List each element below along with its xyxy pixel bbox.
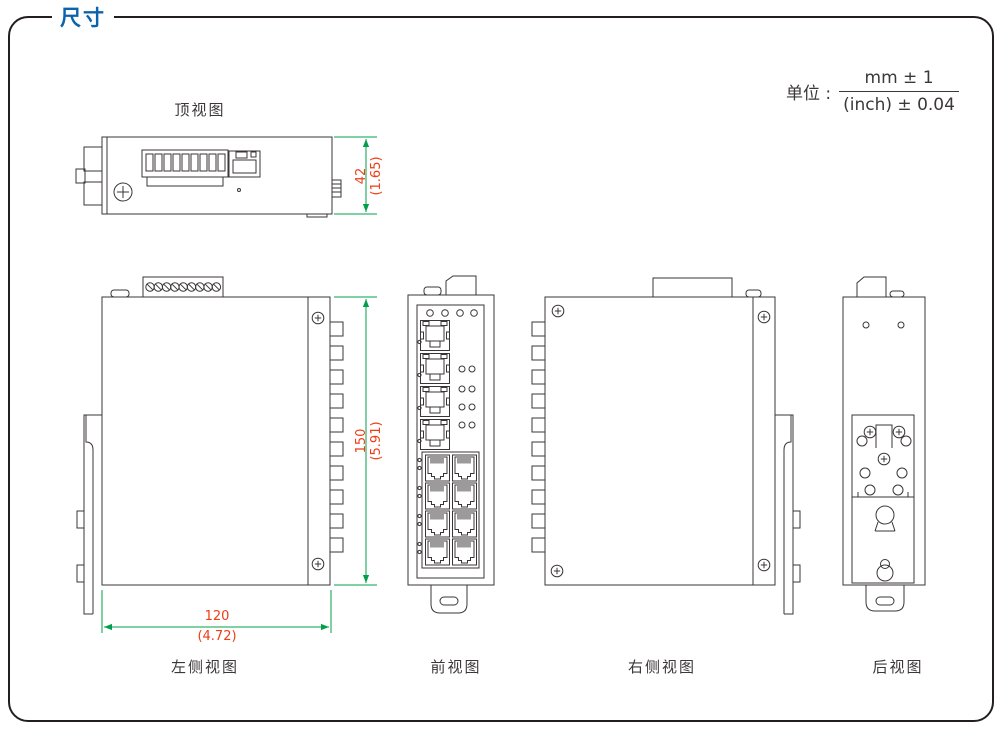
terminal-block-right-side (653, 278, 732, 297)
top-button-rear (890, 291, 904, 297)
terminal-block-front (446, 276, 476, 295)
rj45-ports-front (418, 452, 479, 568)
din-rail-bracket-rear (852, 415, 914, 583)
mounting-tab-rear (866, 585, 904, 611)
dim-120-mm-label: 120 (157, 609, 277, 624)
top-button-front (424, 287, 441, 295)
top-view-label: 顶视图 (174, 99, 225, 120)
front-view-label: 前视图 (430, 656, 481, 677)
reset-hole (238, 189, 241, 192)
unit-fraction: mm ± 1 (inch) ± 0.04 (839, 68, 959, 115)
unit-label: 单位 : (786, 79, 831, 104)
bottom-foot (307, 214, 327, 217)
port-profile-right-view (532, 322, 545, 552)
dim-120-inch-label: (4.72) (157, 629, 277, 644)
vent-hole (863, 322, 869, 328)
terminal-block-side (143, 277, 223, 297)
page-title: 尺寸 (52, 2, 114, 32)
power-jack-side (332, 180, 341, 197)
top-button-right-side (746, 290, 761, 297)
rear-view-label: 后视图 (872, 656, 923, 677)
top-button-side (111, 290, 129, 297)
din-clip-right-view (775, 415, 800, 614)
unit-numerator: mm ± 1 (839, 68, 959, 91)
din-clip-left-view (77, 415, 102, 614)
port-profile-left-view (330, 322, 343, 552)
left-view-label: 左侧视图 (171, 656, 239, 677)
grounding-screw-top (114, 183, 132, 201)
terminal-block-rear (857, 277, 886, 297)
din-clip-top (76, 147, 102, 205)
console-port-top (229, 151, 260, 177)
right-view-label: 右侧视图 (628, 656, 696, 677)
unit-note: 单位 : mm ± 1 (inch) ± 0.04 (786, 68, 959, 115)
led-pairs-sfp (459, 366, 475, 428)
sfp-ports-front (418, 321, 450, 450)
rear-view-drawing (843, 277, 925, 611)
front-view-drawing (408, 276, 494, 613)
dimension-drawing-page: 尺寸 单位 : mm ± 1 (inch) ± 0.04 顶视图 左侧视图 前视… (0, 0, 1000, 733)
led-row-top (427, 310, 478, 317)
left-side-view-drawing (77, 277, 377, 633)
vent-hole (898, 322, 904, 328)
terminal-block-top (142, 150, 228, 186)
top-view-drawing (76, 137, 377, 217)
dim-150-label: 150 (5.91) (352, 412, 386, 470)
unit-denominator: (inch) ± 0.04 (839, 91, 959, 115)
dim-42-label: 42 (1.65) (352, 147, 386, 205)
right-side-view-drawing (532, 278, 800, 614)
mounting-tab-front (431, 585, 467, 613)
